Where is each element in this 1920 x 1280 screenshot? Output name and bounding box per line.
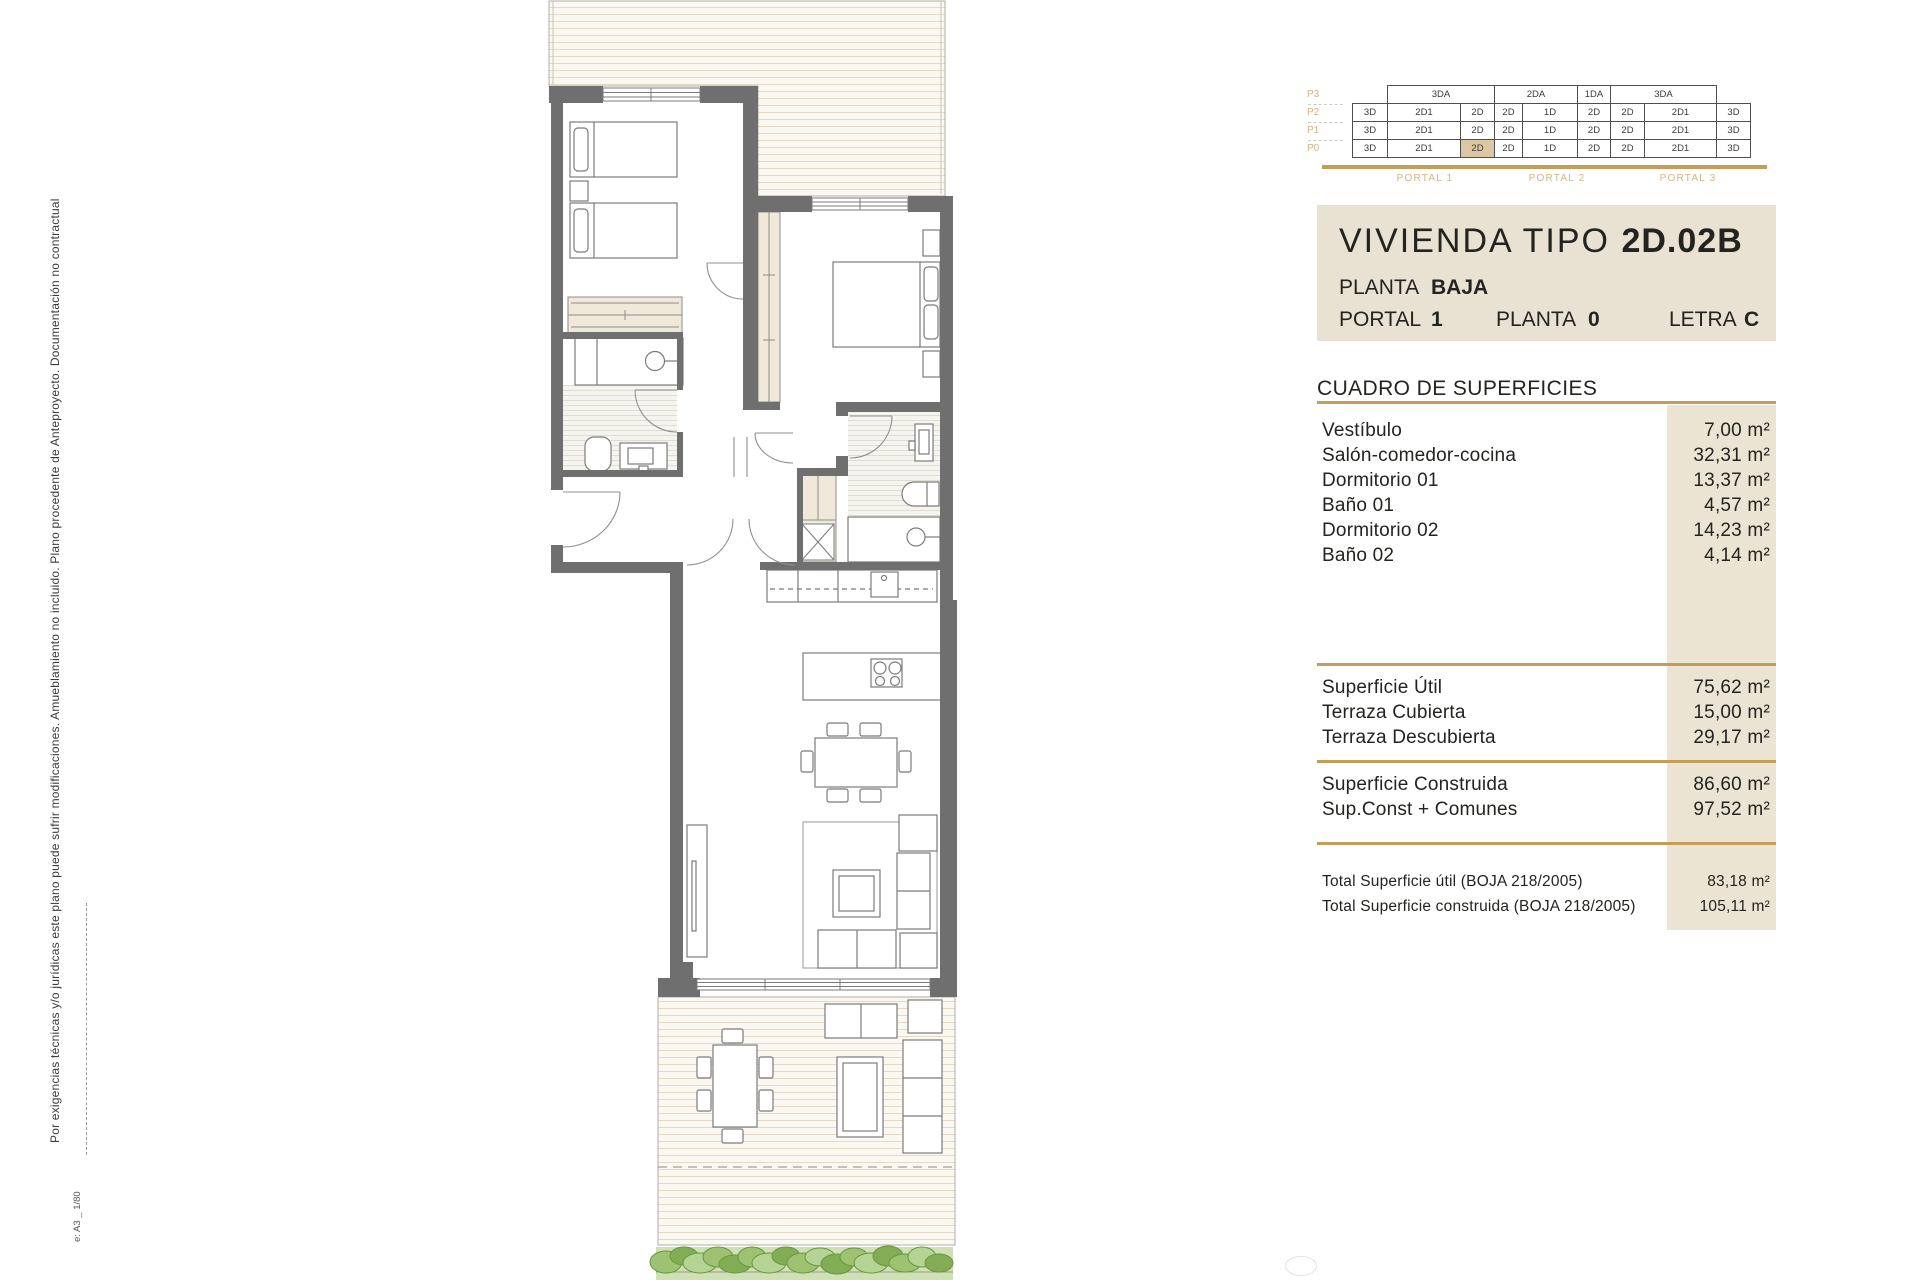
room-area: 4,57 m² xyxy=(1704,493,1770,518)
unit-cell: 1DA xyxy=(1577,85,1611,104)
area-row: Sup.Const + Comunes 97,52 m² xyxy=(1317,797,1776,822)
area-row: Dormitorio 02 14,23 m² xyxy=(1317,518,1776,543)
room-name: Dormitorio 01 xyxy=(1322,468,1439,493)
total-areas-list: Total Superficie útil (BOJA 218/2005) 83… xyxy=(1317,869,1776,919)
unit-cell: 3D xyxy=(1716,121,1751,140)
surface-area: 75,62 m² xyxy=(1693,675,1770,700)
letra-value: C xyxy=(1744,308,1759,331)
unit-cell: 2D1 xyxy=(1644,139,1717,158)
unit-cell: 2D1 xyxy=(1644,103,1717,122)
floor-label: P2 xyxy=(1307,103,1353,122)
unit-cell: 2D xyxy=(1610,103,1645,122)
room-area: 32,31 m² xyxy=(1693,443,1770,468)
unit-cell: 2D1 xyxy=(1387,103,1461,122)
floor-label: P1 xyxy=(1307,121,1353,140)
floor-label: P0 xyxy=(1307,139,1353,158)
unit-cell: 2D xyxy=(1494,139,1523,158)
surface-name: Sup.Const + Comunes xyxy=(1322,797,1518,822)
floor-label: P3 xyxy=(1307,85,1353,104)
unit-cell: 2D1 xyxy=(1644,121,1717,140)
surface-name: Terraza Descubierta xyxy=(1322,725,1496,750)
unit-cell: 1D xyxy=(1522,139,1578,158)
area-row: Baño 01 4,57 m² xyxy=(1317,493,1776,518)
room-name: Salón-comedor-cocina xyxy=(1322,443,1516,468)
unit-cell: 2D1 xyxy=(1387,139,1461,158)
surfaces-header: CUADRO DE SUPERFICIES xyxy=(1317,377,1776,401)
unit-cell: 3DA xyxy=(1387,85,1495,104)
gold-rule xyxy=(1317,401,1776,404)
watermark-icon xyxy=(1285,1256,1317,1276)
portal-2-label: PORTAL 2 xyxy=(1529,173,1586,184)
planta-value: BAJA xyxy=(1431,276,1488,299)
fold-mark-line xyxy=(86,903,87,1155)
room-name: Baño 02 xyxy=(1322,543,1394,568)
unit-cell: 3D xyxy=(1352,103,1388,122)
room-area: 13,37 m² xyxy=(1693,468,1770,493)
unit-cell: 1D xyxy=(1522,103,1578,122)
portal-1-label: PORTAL 1 xyxy=(1397,173,1454,184)
gold-rule xyxy=(1317,842,1776,845)
surface-name: Superficie Construida xyxy=(1322,772,1508,797)
portal-planta-letra-row: PORTAL1PLANTA0LETRAC xyxy=(1339,308,1759,332)
total-name: Total Superficie construida (BOJA 218/20… xyxy=(1322,894,1636,919)
total-area: 105,11 m² xyxy=(1700,894,1770,919)
room-name: Vestíbulo xyxy=(1322,418,1402,443)
unit-cell: 2D1 xyxy=(1387,121,1461,140)
surface-name: Superficie Útil xyxy=(1322,675,1442,700)
area-row: Salón-comedor-cocina 32,31 m² xyxy=(1317,443,1776,468)
scale-note: e: A3 _ 1/80 xyxy=(72,1152,83,1242)
tv-unit-icon xyxy=(687,825,707,957)
surface-area: 15,00 m² xyxy=(1693,700,1770,725)
gold-rule xyxy=(1317,663,1776,666)
surface-area: 86,60 m² xyxy=(1693,772,1770,797)
area-row: Superficie Construida 86,60 m² xyxy=(1317,772,1776,797)
unit-cell: 2D xyxy=(1577,103,1611,122)
unit-cell: 2D xyxy=(1460,139,1495,158)
area-row: Superficie Útil 75,62 m² xyxy=(1317,675,1776,700)
unit-cell: 2D xyxy=(1460,103,1495,122)
area-row: Total Superficie útil (BOJA 218/2005) 83… xyxy=(1317,869,1776,894)
unit-type-label: VIVIENDA TIPO xyxy=(1339,222,1610,260)
unit-cell xyxy=(1352,85,1388,104)
kitchen-counter-icon xyxy=(767,570,937,602)
floor-plan xyxy=(545,0,970,1280)
unit-type-code: 2D.02B xyxy=(1621,222,1742,260)
unit-cell: 3D xyxy=(1352,121,1388,140)
room-area: 4,14 m² xyxy=(1704,543,1770,568)
hedge-icon xyxy=(650,1246,953,1280)
planta-label: PLANTA xyxy=(1339,276,1431,300)
unit-cell: 2D xyxy=(1460,121,1495,140)
unit-cell: 2DA xyxy=(1494,85,1578,104)
area-row: Terraza Descubierta 29,17 m² xyxy=(1317,725,1776,750)
kitchen-island-icon xyxy=(803,653,942,700)
room-areas-list: Vestíbulo 7,00 m² Salón-comedor-cocina 3… xyxy=(1317,418,1776,568)
building-unit-matrix: P33DA2DA1DA3DAP23D2D12D2D1D2D2D2D13DP13D… xyxy=(1307,85,1777,195)
surface-name: Terraza Cubierta xyxy=(1322,700,1466,725)
unit-cell: 2D xyxy=(1494,103,1523,122)
useful-areas-list: Superficie Útil 75,62 m² Terraza Cubiert… xyxy=(1317,675,1776,750)
title-block: VIVIENDA TIPO 2D.02B PLANTABAJA PORTAL1P… xyxy=(1317,205,1776,341)
portal-label: PORTAL xyxy=(1339,308,1431,332)
area-row: Total Superficie construida (BOJA 218/20… xyxy=(1317,894,1776,919)
surface-area: 29,17 m² xyxy=(1693,725,1770,750)
portal-3-label: PORTAL 3 xyxy=(1660,173,1717,184)
planta-num-value: 0 xyxy=(1588,308,1669,332)
area-row: Vestíbulo 7,00 m² xyxy=(1317,418,1776,443)
unit-cell: 2D xyxy=(1610,121,1645,140)
gold-rule xyxy=(1322,165,1767,169)
letra-label: LETRA xyxy=(1669,308,1744,332)
unit-cell: 2D xyxy=(1577,139,1611,158)
built-areas-list: Superficie Construida 86,60 m² Sup.Const… xyxy=(1317,772,1776,822)
planta-num-label: PLANTA xyxy=(1496,308,1588,332)
surface-area: 97,52 m² xyxy=(1693,797,1770,822)
portal-value: 1 xyxy=(1431,308,1496,332)
unit-cell: 3D xyxy=(1716,103,1751,122)
planta-row: PLANTABAJA xyxy=(1339,276,1488,300)
unit-cell: 3D xyxy=(1716,139,1751,158)
total-name: Total Superficie útil (BOJA 218/2005) xyxy=(1322,869,1583,894)
unit-cell: 2D xyxy=(1494,121,1523,140)
room-name: Dormitorio 02 xyxy=(1322,518,1439,543)
area-row: Terraza Cubierta 15,00 m² xyxy=(1317,700,1776,725)
plan-sheet: Por exigencias técnicas y/o jurídicas es… xyxy=(0,0,1920,1280)
area-row: Baño 02 4,14 m² xyxy=(1317,543,1776,568)
room-area: 14,23 m² xyxy=(1693,518,1770,543)
unit-cell: 1D xyxy=(1522,121,1578,140)
room-name: Baño 01 xyxy=(1322,493,1394,518)
legal-disclaimer-text: Por exigencias técnicas y/o jurídicas es… xyxy=(48,228,62,1143)
unit-cell: 2D xyxy=(1610,139,1645,158)
total-area: 83,18 m² xyxy=(1707,869,1770,894)
unit-cell: 3DA xyxy=(1610,85,1717,104)
gold-rule xyxy=(1317,760,1776,763)
unit-cell: 2D xyxy=(1577,121,1611,140)
room-area: 7,00 m² xyxy=(1704,418,1770,443)
unit-cell: 3D xyxy=(1352,139,1388,158)
outdoor-sofa-icon xyxy=(825,1000,942,1153)
washer-icon xyxy=(802,524,834,560)
area-row: Dormitorio 01 13,37 m² xyxy=(1317,468,1776,493)
unit-type-title: VIVIENDA TIPO 2D.02B xyxy=(1339,221,1743,261)
unit-matrix-rows: P33DA2DA1DA3DAP23D2D12D2D1D2D2D2D13DP13D… xyxy=(1307,85,1777,158)
